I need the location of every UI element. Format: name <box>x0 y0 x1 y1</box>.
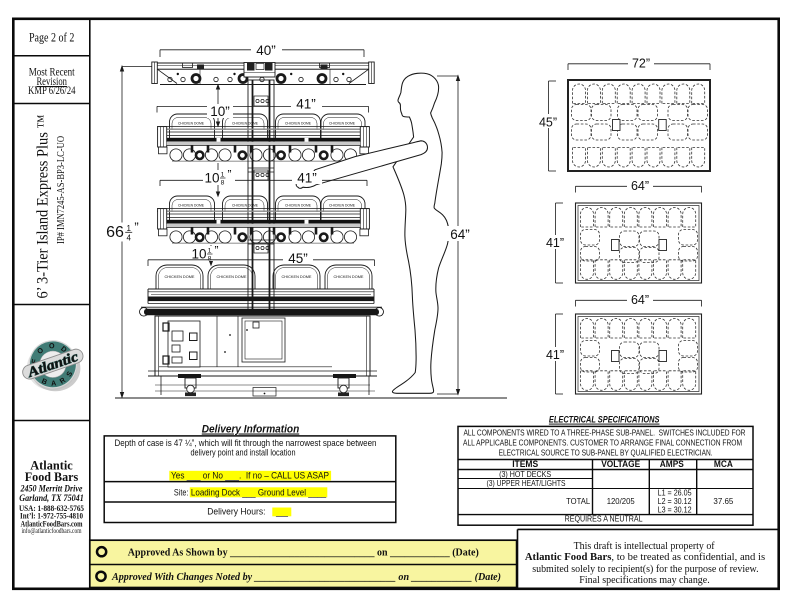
svg-text:VOLTAGE: VOLTAGE <box>601 459 640 469</box>
svg-text:”: ” <box>228 168 232 182</box>
svg-text:1: 1 <box>126 224 131 233</box>
svg-text:1: 1 <box>208 248 212 255</box>
svg-text:10”: 10” <box>210 104 230 119</box>
svg-text:2450 Merritt Drive: 2450 Merritt Drive <box>20 485 84 495</box>
svg-text:CHICKEN DOME: CHICKEN DOME <box>217 275 248 279</box>
svg-text:6’ 3-Tier Island Express Plus: 6’ 3-Tier Island Express Plus ™ <box>35 115 52 299</box>
svg-text:KMP 6/26/24: KMP 6/26/24 <box>28 85 76 97</box>
svg-text:Yes ___ or No ___. If no – CA: Yes ___ or No ___. If no – CALL US ASAP <box>171 470 329 480</box>
svg-text:submited solely to recipient(s: submited solely to recipient(s) for the … <box>532 564 758 575</box>
svg-text:120/205: 120/205 <box>607 497 635 506</box>
svg-text:TOTAL: TOTAL <box>566 497 590 506</box>
svg-text:45”: 45” <box>539 116 557 130</box>
svg-text:41”: 41” <box>546 348 564 362</box>
svg-text:Final specifications may chang: Final specifications may change. <box>579 575 709 586</box>
svg-text:Atlantic Food Bars, to be trea: Atlantic Food Bars, to be treated as con… <box>525 552 765 563</box>
svg-text:L3 = 30.12: L3 = 30.12 <box>658 505 692 514</box>
svg-text:8: 8 <box>208 256 212 263</box>
svg-text:40”: 40” <box>256 43 276 58</box>
svg-text:CHICKEN DOME: CHICKEN DOME <box>282 275 313 279</box>
svg-text:delivery point and install loc: delivery point and install location <box>191 447 296 457</box>
svg-text:”: ” <box>134 220 138 235</box>
svg-text:8: 8 <box>221 180 225 187</box>
svg-text:1: 1 <box>221 172 225 179</box>
svg-text:41”: 41” <box>297 171 317 186</box>
svg-text:Page 2 of 2: Page 2 of 2 <box>29 30 75 45</box>
svg-text:Approved As Shown by _________: Approved As Shown by ___________________… <box>128 547 479 558</box>
svg-text:Loading Dock ___ Ground Level: Loading Dock ___ Ground Level ____ <box>191 487 327 497</box>
svg-text:ELECTRICAL SOURCE TO SUB-PANEL: ELECTRICAL SOURCE TO SUB-PANEL BY QUALIF… <box>499 448 713 458</box>
svg-text:ALL APPLICABLE COMPONENTS. CUS: ALL APPLICABLE COMPONENTS. CUSTOMER TO A… <box>463 438 742 448</box>
svg-text:ELECTRICAL SPECIFICATIONS: ELECTRICAL SPECIFICATIONS <box>549 415 660 426</box>
svg-text:66: 66 <box>106 224 124 241</box>
svg-text:IP# IMN7245-AS-BP3-LC-UO: IP# IMN7245-AS-BP3-LC-UO <box>56 136 67 244</box>
svg-text:CHICKEN DOME: CHICKEN DOME <box>334 275 365 279</box>
svg-text:Delivery Information: Delivery Information <box>202 424 300 436</box>
svg-text:ITEMS: ITEMS <box>512 459 538 469</box>
svg-text:64”: 64” <box>631 293 649 307</box>
svg-text:info@atlanticfoodbars.com: info@atlanticfoodbars.com <box>22 527 82 535</box>
svg-text:CHICKEN DOME: CHICKEN DOME <box>165 275 196 279</box>
svg-text:(3) UPPER HEAT/LIGHTS: (3) UPPER HEAT/LIGHTS <box>487 479 566 488</box>
svg-text:Depth of case is 47 ¼”, which: Depth of case is 47 ¼”, which will fit t… <box>115 438 377 448</box>
svg-text:____: ____ <box>275 507 288 517</box>
svg-text:45”: 45” <box>288 251 308 266</box>
svg-text:64”: 64” <box>450 227 470 242</box>
svg-text:64”: 64” <box>631 179 649 193</box>
svg-text:37.65: 37.65 <box>713 497 733 506</box>
svg-text:MCA: MCA <box>714 459 734 469</box>
svg-text:41”: 41” <box>546 236 564 250</box>
svg-text:41”: 41” <box>296 97 316 112</box>
svg-text:10: 10 <box>191 247 206 262</box>
svg-text:72”: 72” <box>632 57 650 71</box>
svg-text:Approved With Changes Noted by: Approved With Changes Noted by _________… <box>111 572 501 583</box>
svg-text:”: ” <box>215 244 219 258</box>
svg-text:Delivery Hours:: Delivery Hours: <box>207 507 265 517</box>
svg-text:Food Bars: Food Bars <box>25 469 79 484</box>
svg-text:Site:: Site: <box>174 487 189 497</box>
svg-text:REQUIRES A NEUTRAL: REQUIRES A NEUTRAL <box>565 515 643 524</box>
svg-text:ALL COMPONENTS WIRED TO A THRE: ALL COMPONENTS WIRED TO A THREE-PHASE SU… <box>464 428 746 438</box>
svg-text:This draft is intellectual pro: This draft is intellectual property of <box>574 541 716 552</box>
svg-text:(3) HOT DECKS: (3) HOT DECKS <box>499 470 551 479</box>
svg-text:AMPS: AMPS <box>660 459 684 469</box>
svg-text:10: 10 <box>204 171 219 186</box>
svg-text:Garland, TX 75041: Garland, TX 75041 <box>19 494 84 504</box>
svg-text:4: 4 <box>126 233 131 242</box>
